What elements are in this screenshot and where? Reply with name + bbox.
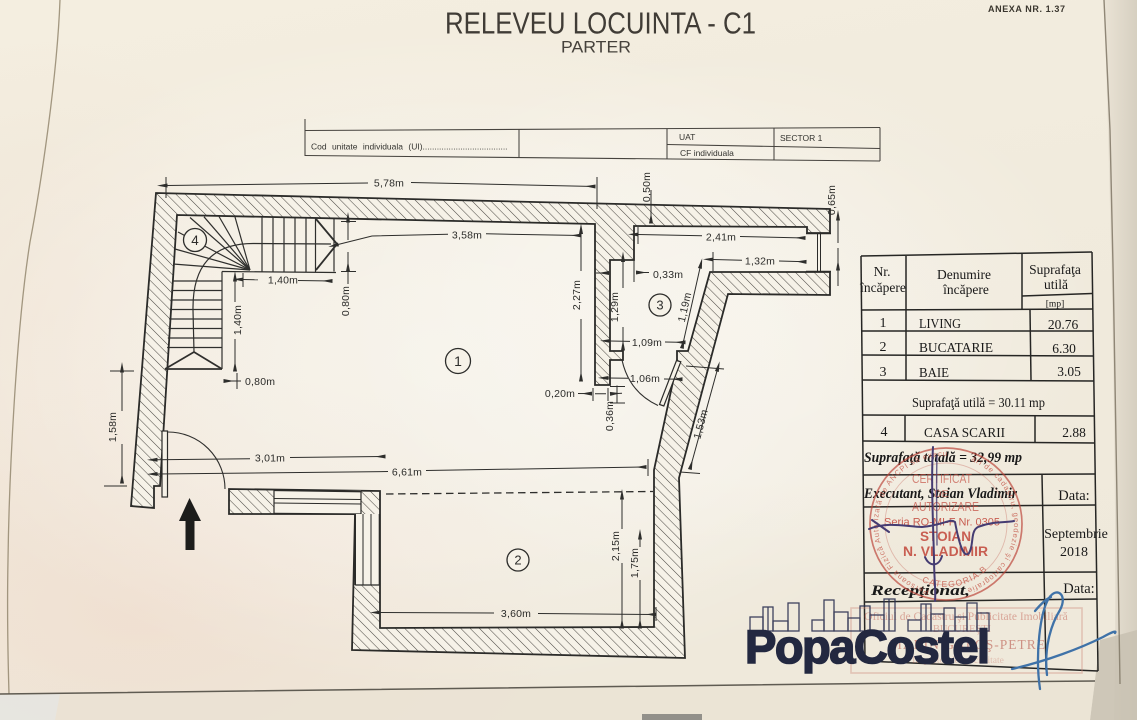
svg-text:CERTIFICAT: CERTIFICAT — [912, 471, 972, 486]
svg-text:Septembrie: Septembrie — [1044, 527, 1108, 542]
svg-text:Data:: Data: — [1058, 488, 1089, 504]
svg-text:1,29m: 1,29m — [609, 292, 621, 322]
svg-text:0,33m: 0,33m — [653, 269, 683, 281]
svg-text:CASA SCARII: CASA SCARII — [924, 426, 1005, 441]
svg-text:2.88: 2.88 — [1062, 425, 1086, 440]
svg-text:6,61m: 6,61m — [392, 467, 422, 479]
svg-text:BUCATARIE: BUCATARIE — [919, 341, 993, 356]
svg-text:1,06m: 1,06m — [630, 373, 660, 385]
svg-text:0,80m: 0,80m — [245, 376, 275, 388]
svg-text:3,01m: 3,01m — [255, 453, 285, 465]
svg-text:3: 3 — [880, 365, 887, 380]
svg-text:1: 1 — [454, 353, 462, 369]
svg-text:1,32m: 1,32m — [745, 256, 775, 268]
svg-text:6.30: 6.30 — [1052, 341, 1076, 356]
svg-text:5,78m: 5,78m — [374, 178, 404, 190]
svg-text:1,09m: 1,09m — [632, 337, 662, 349]
svg-text:1,40m: 1,40m — [268, 275, 298, 287]
svg-text:AUTORIZARE: AUTORIZARE — [912, 499, 979, 514]
svg-text:0,36m: 0,36m — [604, 401, 616, 431]
svg-text:LIVING: LIVING — [919, 317, 961, 332]
svg-text:20.76: 20.76 — [1048, 317, 1079, 332]
svg-text:utilă: utilă — [1044, 277, 1068, 292]
svg-text:ANEXA NR. 1.37: ANEXA NR. 1.37 — [988, 4, 1066, 14]
svg-text:N. VLADIMIR: N. VLADIMIR — [903, 544, 988, 559]
svg-text:2: 2 — [880, 340, 887, 355]
svg-text:Nr.: Nr. — [874, 264, 891, 279]
svg-text:1,75m: 1,75m — [629, 548, 641, 578]
svg-text:2,41m: 2,41m — [706, 232, 736, 244]
svg-text:2,15m: 2,15m — [610, 531, 622, 561]
svg-text:4: 4 — [881, 425, 888, 440]
svg-text:3: 3 — [656, 298, 663, 313]
svg-text:CF individuala: CF individuala — [680, 148, 734, 158]
svg-text:0,80m: 0,80m — [340, 286, 352, 316]
svg-text:încăpere: încăpere — [942, 282, 989, 297]
svg-text:Suprafaţa: Suprafaţa — [1029, 262, 1081, 277]
svg-text:4: 4 — [191, 233, 199, 248]
svg-text:2,27m: 2,27m — [571, 280, 583, 310]
svg-text:0,65m: 0,65m — [826, 185, 838, 215]
svg-text:BAIE: BAIE — [919, 366, 949, 381]
svg-text:PARTER: PARTER — [561, 39, 631, 57]
svg-text:3,60m: 3,60m — [501, 608, 531, 620]
svg-text:SECTOR 1: SECTOR 1 — [780, 133, 823, 143]
svg-text:1: 1 — [880, 316, 887, 331]
svg-text:Data:: Data: — [1063, 581, 1094, 597]
svg-text:Suprafaţă utilă = 30.11 mp: Suprafaţă utilă = 30.11 mp — [912, 396, 1045, 411]
svg-text:[mp]: [mp] — [1046, 300, 1064, 310]
svg-text:3,58m: 3,58m — [452, 230, 482, 242]
svg-text:UAT: UAT — [679, 132, 695, 142]
svg-text:Cod unitate individuala (UI): Cod unitate individuala (UI)............… — [311, 142, 508, 152]
svg-text:0,20m: 0,20m — [545, 388, 575, 400]
svg-text:PopaCostel: PopaCostel — [745, 620, 989, 673]
svg-text:Denumire: Denumire — [937, 267, 991, 282]
svg-text:1,58m: 1,58m — [107, 412, 119, 442]
svg-text:încăpere: încăpere — [859, 280, 906, 295]
svg-text:0,50m: 0,50m — [641, 172, 653, 202]
svg-text:STOIAN: STOIAN — [920, 529, 971, 544]
svg-text:1,40m: 1,40m — [232, 305, 244, 335]
svg-text:3.05: 3.05 — [1057, 364, 1081, 379]
svg-text:RELEVEU LOCUINTA - C1: RELEVEU LOCUINTA - C1 — [445, 6, 756, 41]
svg-text:2: 2 — [514, 553, 521, 568]
svg-text:2018: 2018 — [1060, 545, 1088, 560]
